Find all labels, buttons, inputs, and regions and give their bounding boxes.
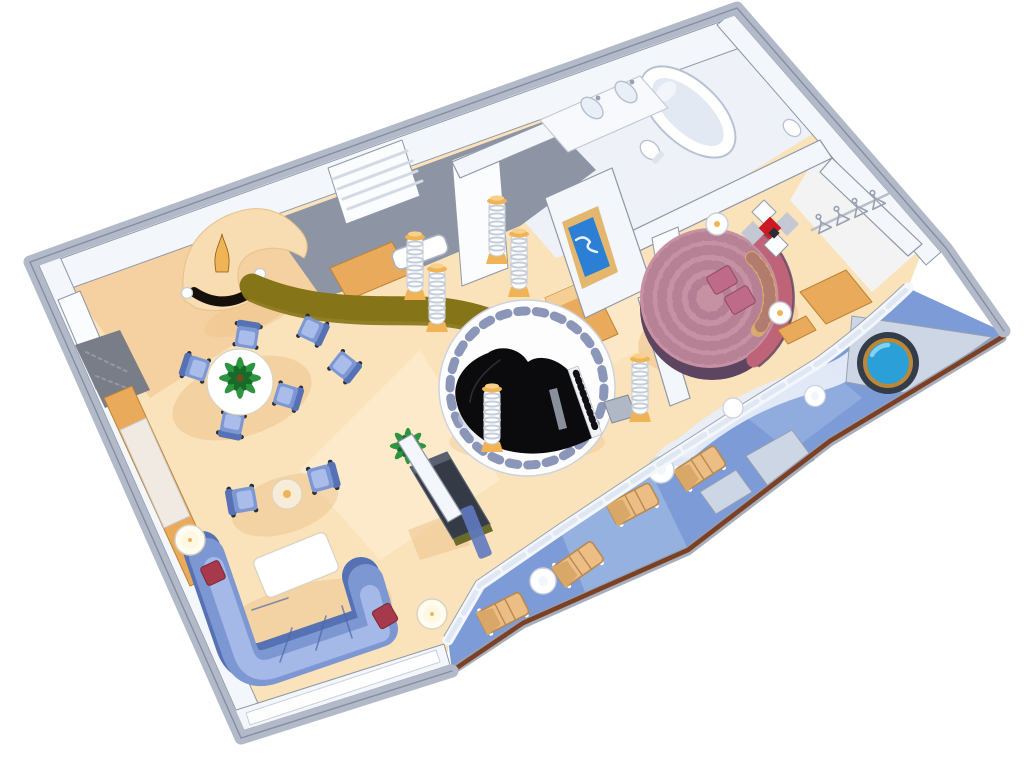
palm-centerpiece	[219, 357, 261, 399]
round-deck-table	[530, 568, 556, 594]
faucet	[596, 96, 601, 101]
whirlpool-tub	[857, 332, 919, 394]
faucet	[630, 80, 635, 85]
wall-sconce	[182, 288, 193, 299]
suite-floorplan-illustration	[0, 0, 1024, 768]
floor-lamp	[417, 599, 447, 629]
round-deck-table	[805, 386, 826, 407]
stool	[723, 398, 743, 418]
floor-lamp	[175, 525, 205, 555]
side-table-center	[283, 490, 291, 498]
